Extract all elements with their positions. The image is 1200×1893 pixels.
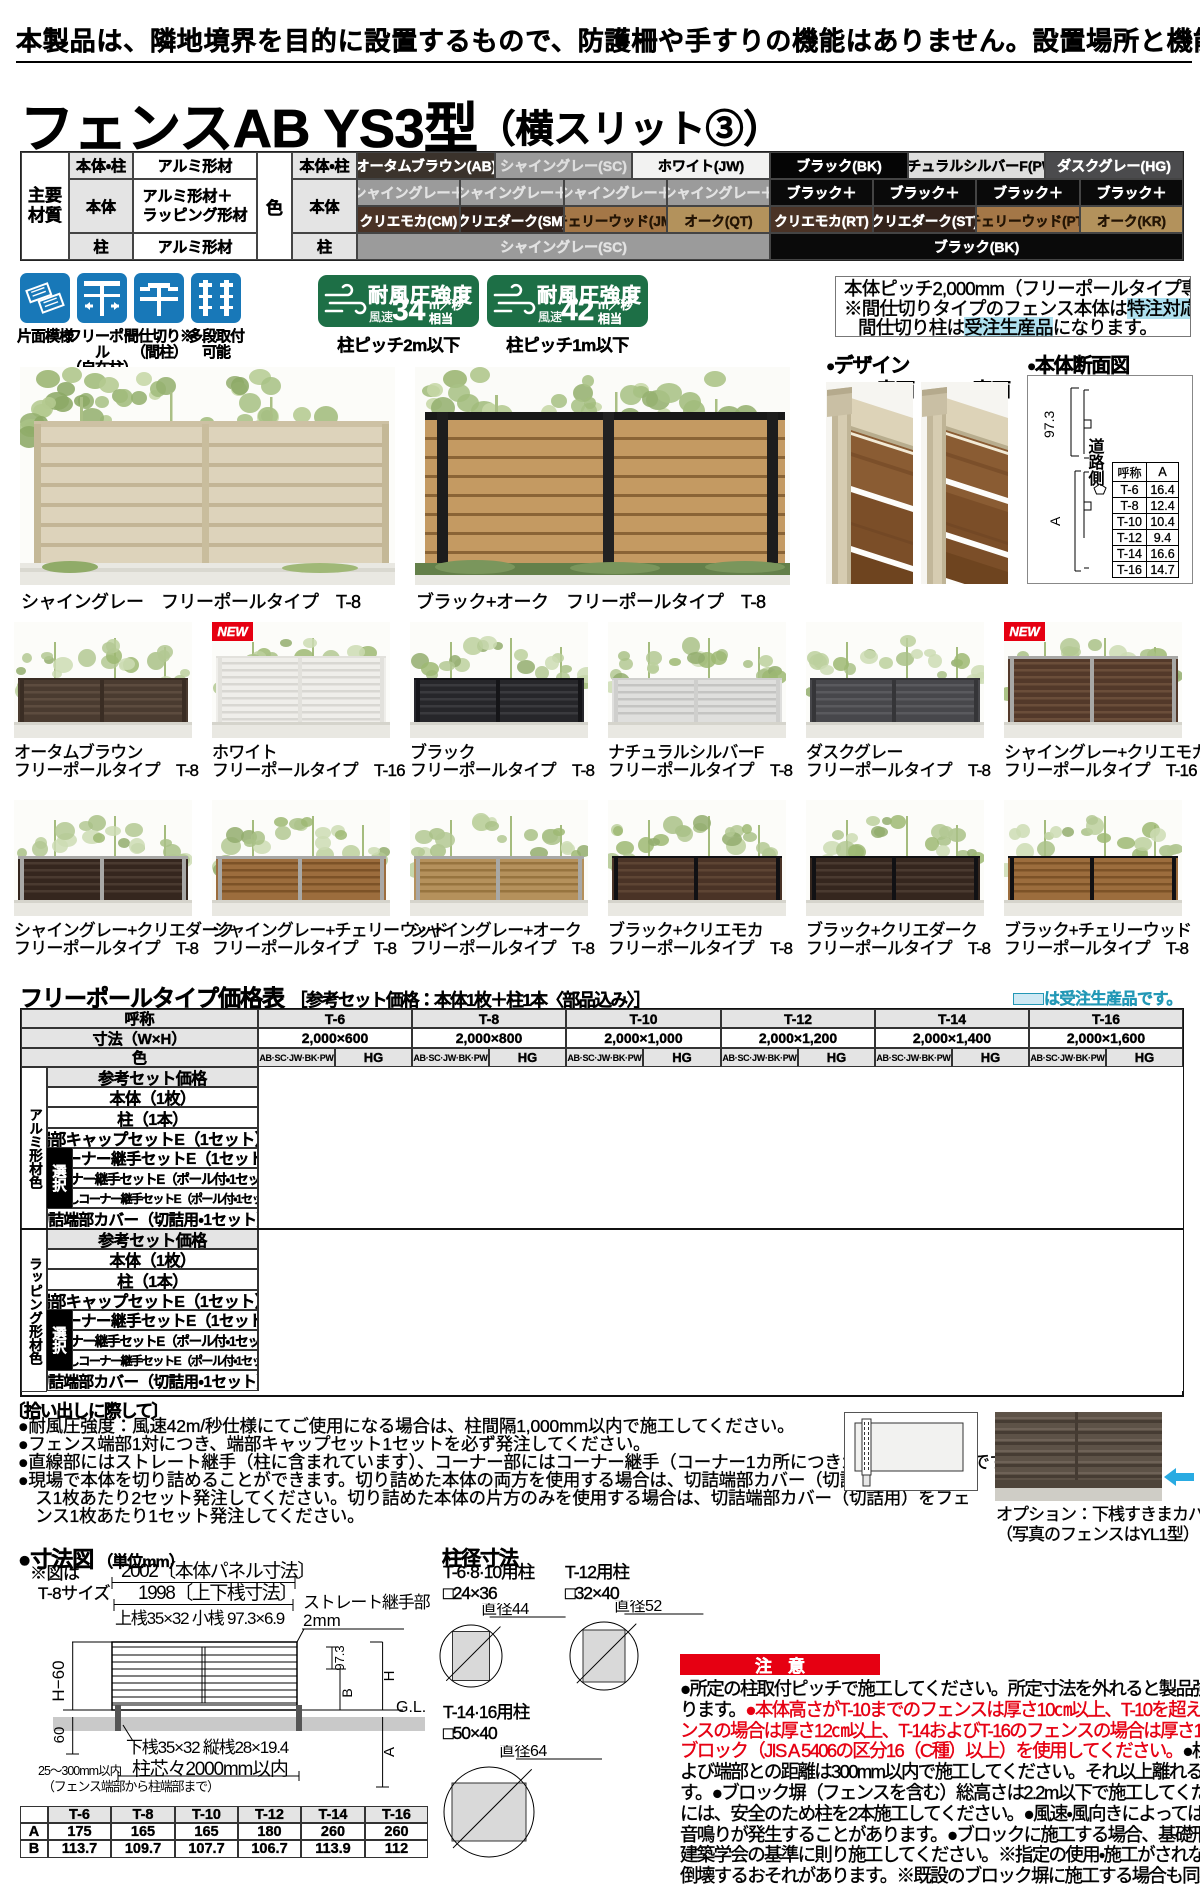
svg-text:上桟35×32 小桟 97.3×6.9: 上桟35×32 小桟 97.3×6.9: [115, 1609, 285, 1628]
svg-text:H−60: H−60: [49, 1660, 68, 1701]
svg-text:H: H: [381, 1671, 398, 1682]
svg-text:G.L.: G.L.: [396, 1699, 426, 1716]
svg-text:下桟35×32 縦桟28×19.4: 下桟35×32 縦桟28×19.4: [126, 1738, 289, 1757]
svg-text:直径52: 直径52: [614, 1600, 662, 1615]
svg-text:97.3: 97.3: [1041, 411, 1057, 438]
svg-text:道路側: 道路側: [1086, 437, 1106, 487]
svg-text:97.3: 97.3: [332, 1645, 347, 1670]
svg-text:A: A: [1047, 516, 1063, 526]
svg-text:25～300mm以内: 25～300mm以内: [38, 1764, 122, 1778]
svg-text:A: A: [381, 1747, 398, 1757]
svg-text:柱芯々2000mm以内: 柱芯々2000mm以内: [132, 1758, 288, 1780]
svg-text:2mm: 2mm: [303, 1611, 341, 1630]
svg-text:ストレート継手部: ストレート継手部: [303, 1593, 431, 1612]
svg-text:1998〔上下桟寸法〕: 1998〔上下桟寸法〕: [138, 1582, 297, 1604]
svg-text:2002〔本体パネル寸法〕: 2002〔本体パネル寸法〕: [121, 1560, 315, 1582]
svg-text:直径44: 直径44: [481, 1603, 529, 1618]
svg-text:直径64: 直径64: [499, 1745, 547, 1760]
svg-text:（フェンス端部から柱端部まで）: （フェンス端部から柱端部まで）: [42, 1779, 219, 1794]
svg-text:60: 60: [51, 1727, 68, 1744]
svg-text:B: B: [339, 1688, 355, 1697]
